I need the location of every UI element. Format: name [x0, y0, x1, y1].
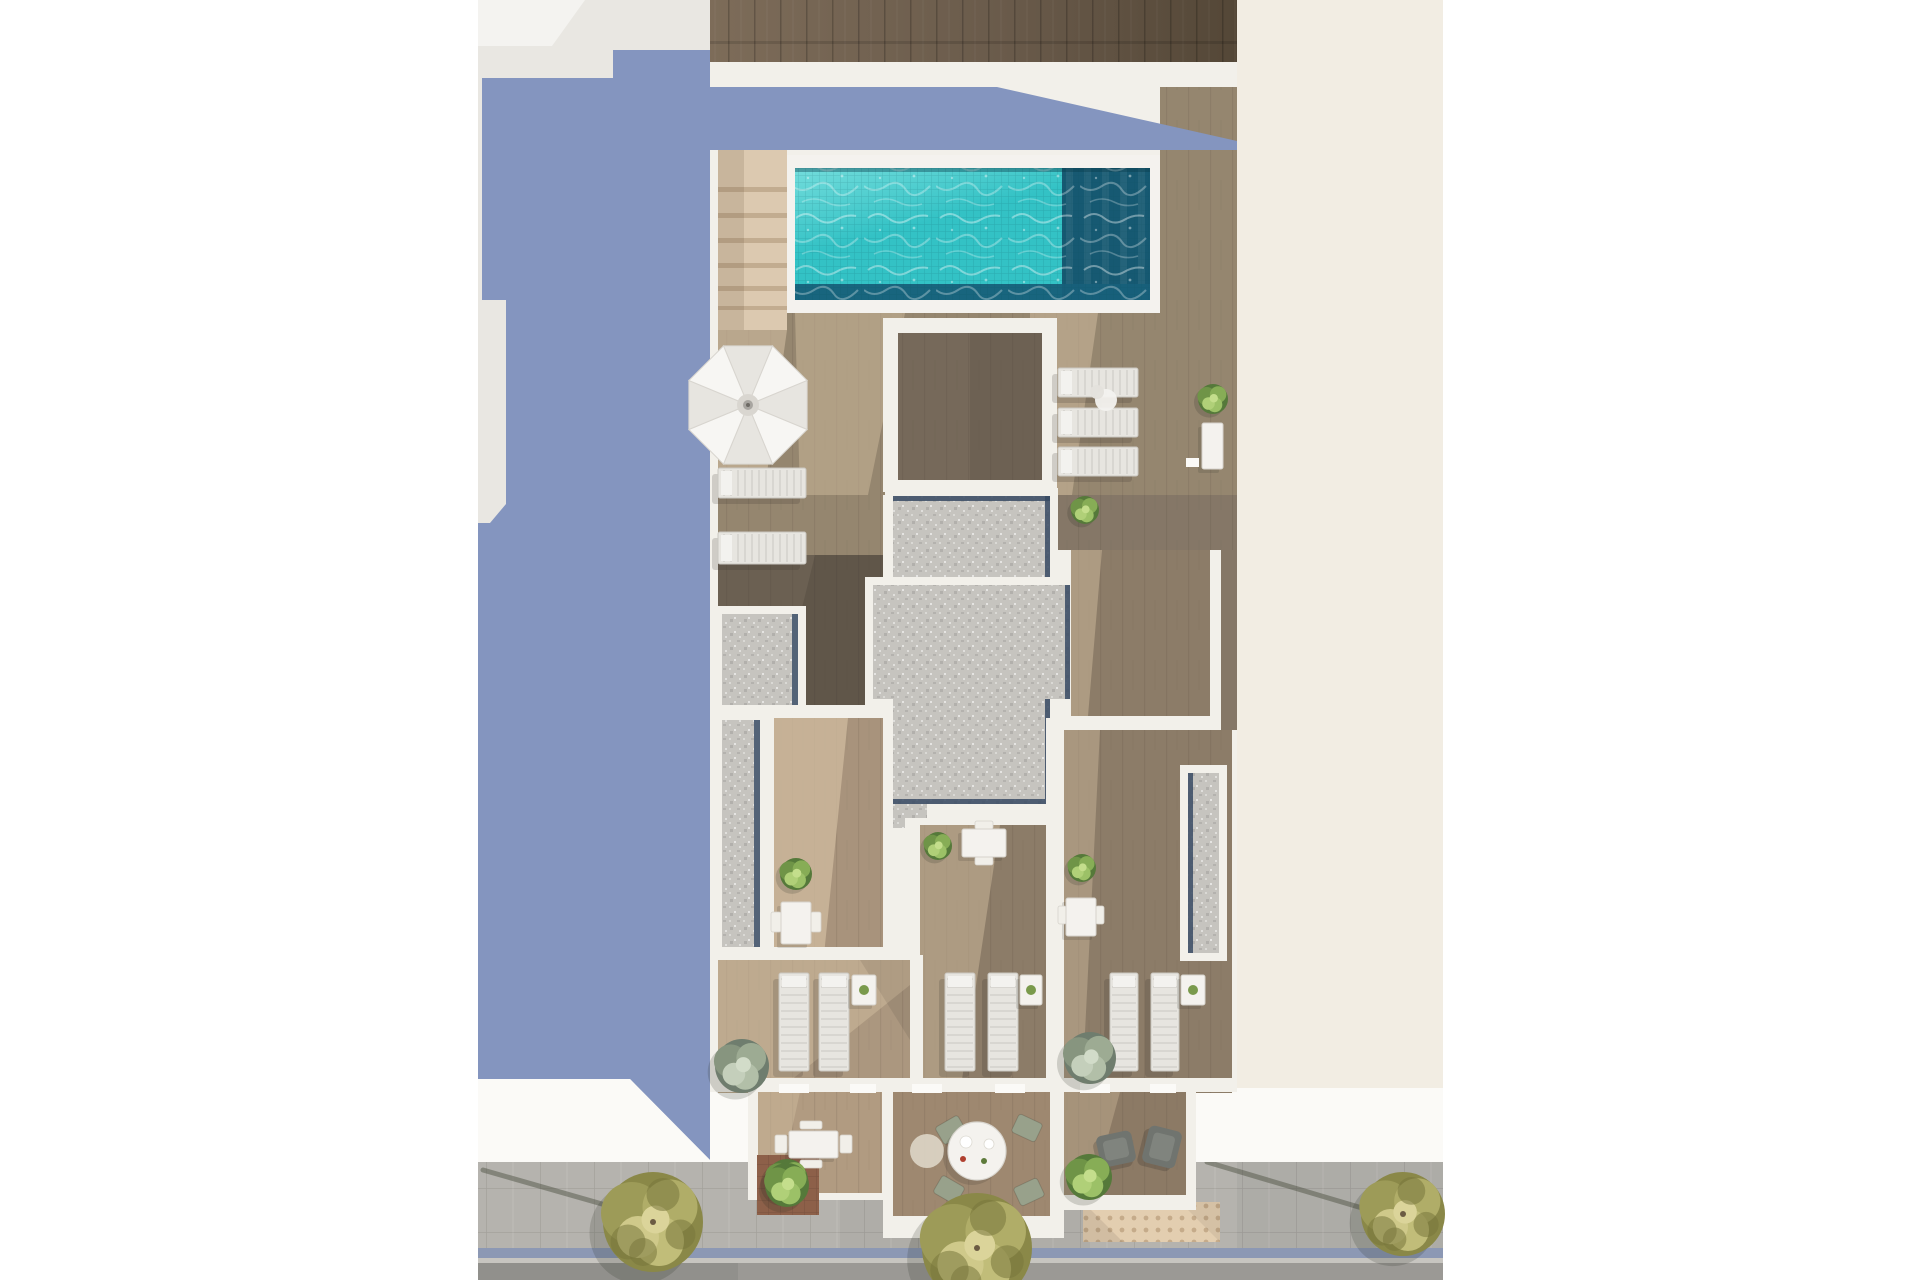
- patio-umbrella: [689, 346, 807, 464]
- table-plant: [1188, 985, 1198, 995]
- sun-lounger: [712, 468, 806, 504]
- sun-lounger: [1052, 408, 1138, 443]
- west-gravel-wide: [722, 614, 792, 710]
- floorplan-render: [0, 0, 1920, 1280]
- towel-pile: [1090, 385, 1104, 399]
- gravel-gap-line-top: [893, 496, 1050, 501]
- sun-lounger: [712, 532, 806, 570]
- room-a-right-wall: [910, 955, 923, 1093]
- door-threshold: [779, 1084, 809, 1093]
- roof-plank-seam: [710, 41, 1237, 44]
- sun-lounger: [982, 973, 1018, 1077]
- west-gravel-wide-gap: [792, 614, 798, 710]
- scene-root: [0, 0, 1920, 1280]
- west-gravel-narrow: [722, 720, 754, 947]
- scene-canvas: [0, 0, 1920, 1280]
- frontage-left-strip: [710, 1092, 748, 1162]
- round-rug: [910, 1134, 944, 1168]
- building-cast-shadow: [478, 50, 710, 1160]
- deck-east-top: [1160, 87, 1237, 313]
- stair-side-shade: [718, 150, 744, 330]
- sun-lounger: [1052, 447, 1138, 482]
- tan-room-right-wall: [883, 718, 893, 955]
- door-threshold: [995, 1084, 1025, 1093]
- mid-room-floor-shade: [970, 333, 1042, 480]
- gravel-gap-line-r1: [1045, 496, 1050, 577]
- room-b-right-wall: [1046, 718, 1057, 1093]
- gravel-gap-line-r2: [1065, 585, 1070, 699]
- deck-east-column: [1221, 550, 1237, 730]
- west-gravel-narrow-gap: [754, 720, 760, 947]
- pool-edge-line: [795, 168, 1150, 172]
- frontage-east-strip: [1196, 1092, 1237, 1162]
- sun-lounger: [939, 973, 975, 1077]
- frontage-right-white: [1237, 1088, 1443, 1162]
- pool-caustics: [795, 168, 1150, 300]
- roof-plank-strip: [710, 0, 1237, 62]
- table-plant: [859, 985, 869, 995]
- room-ne-right-wall: [1210, 550, 1221, 716]
- sun-lounger: [773, 973, 809, 1077]
- sun-lounger: [813, 973, 849, 1077]
- door-threshold: [850, 1084, 876, 1093]
- sun-lounger: [1145, 973, 1179, 1077]
- gravel-roof-3: [893, 699, 1050, 804]
- door-threshold: [1150, 1084, 1176, 1093]
- serving-tray: [1186, 458, 1199, 467]
- east-gravel-gap: [1188, 773, 1193, 953]
- room-ne-bottom-wall: [1057, 716, 1221, 730]
- gravel-gap-line-bottom: [893, 799, 1050, 804]
- right-cream-yard: [1237, 0, 1443, 1162]
- side-table: [1198, 423, 1223, 473]
- door-threshold: [912, 1084, 942, 1093]
- room-a-top-wall: [710, 947, 913, 960]
- gravel-roof-1: [893, 496, 1050, 577]
- gravel-roof-2: [873, 585, 1070, 699]
- table-plant: [1026, 985, 1036, 995]
